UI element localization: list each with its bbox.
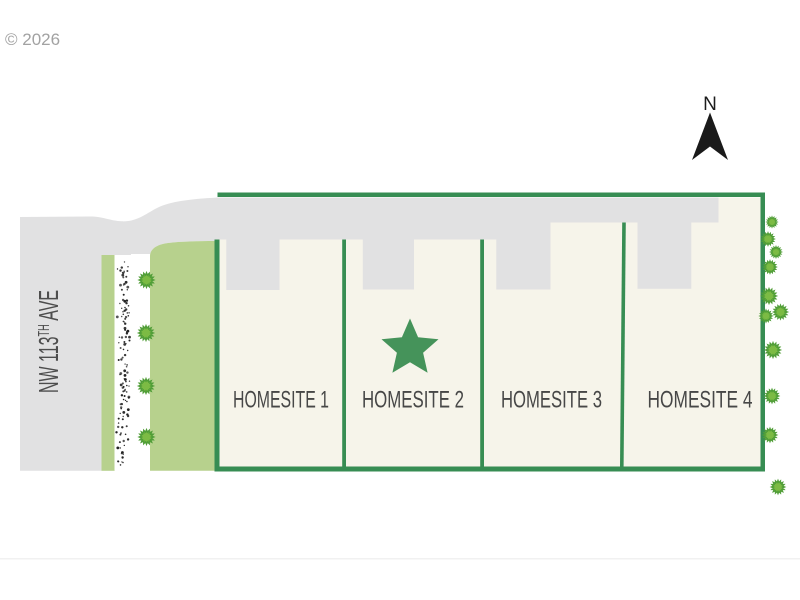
- svg-text:NW 113TH AVE: NW 113TH AVE: [33, 290, 64, 393]
- svg-text:© 2026: © 2026: [5, 30, 60, 49]
- svg-text:N: N: [703, 94, 717, 115]
- svg-text:HOMESITE 3: HOMESITE 3: [501, 387, 602, 414]
- svg-text:HOMESITE 4: HOMESITE 4: [648, 387, 753, 414]
- svg-text:HOMESITE 2: HOMESITE 2: [362, 387, 464, 414]
- svg-text:HOMESITE 1: HOMESITE 1: [233, 387, 329, 414]
